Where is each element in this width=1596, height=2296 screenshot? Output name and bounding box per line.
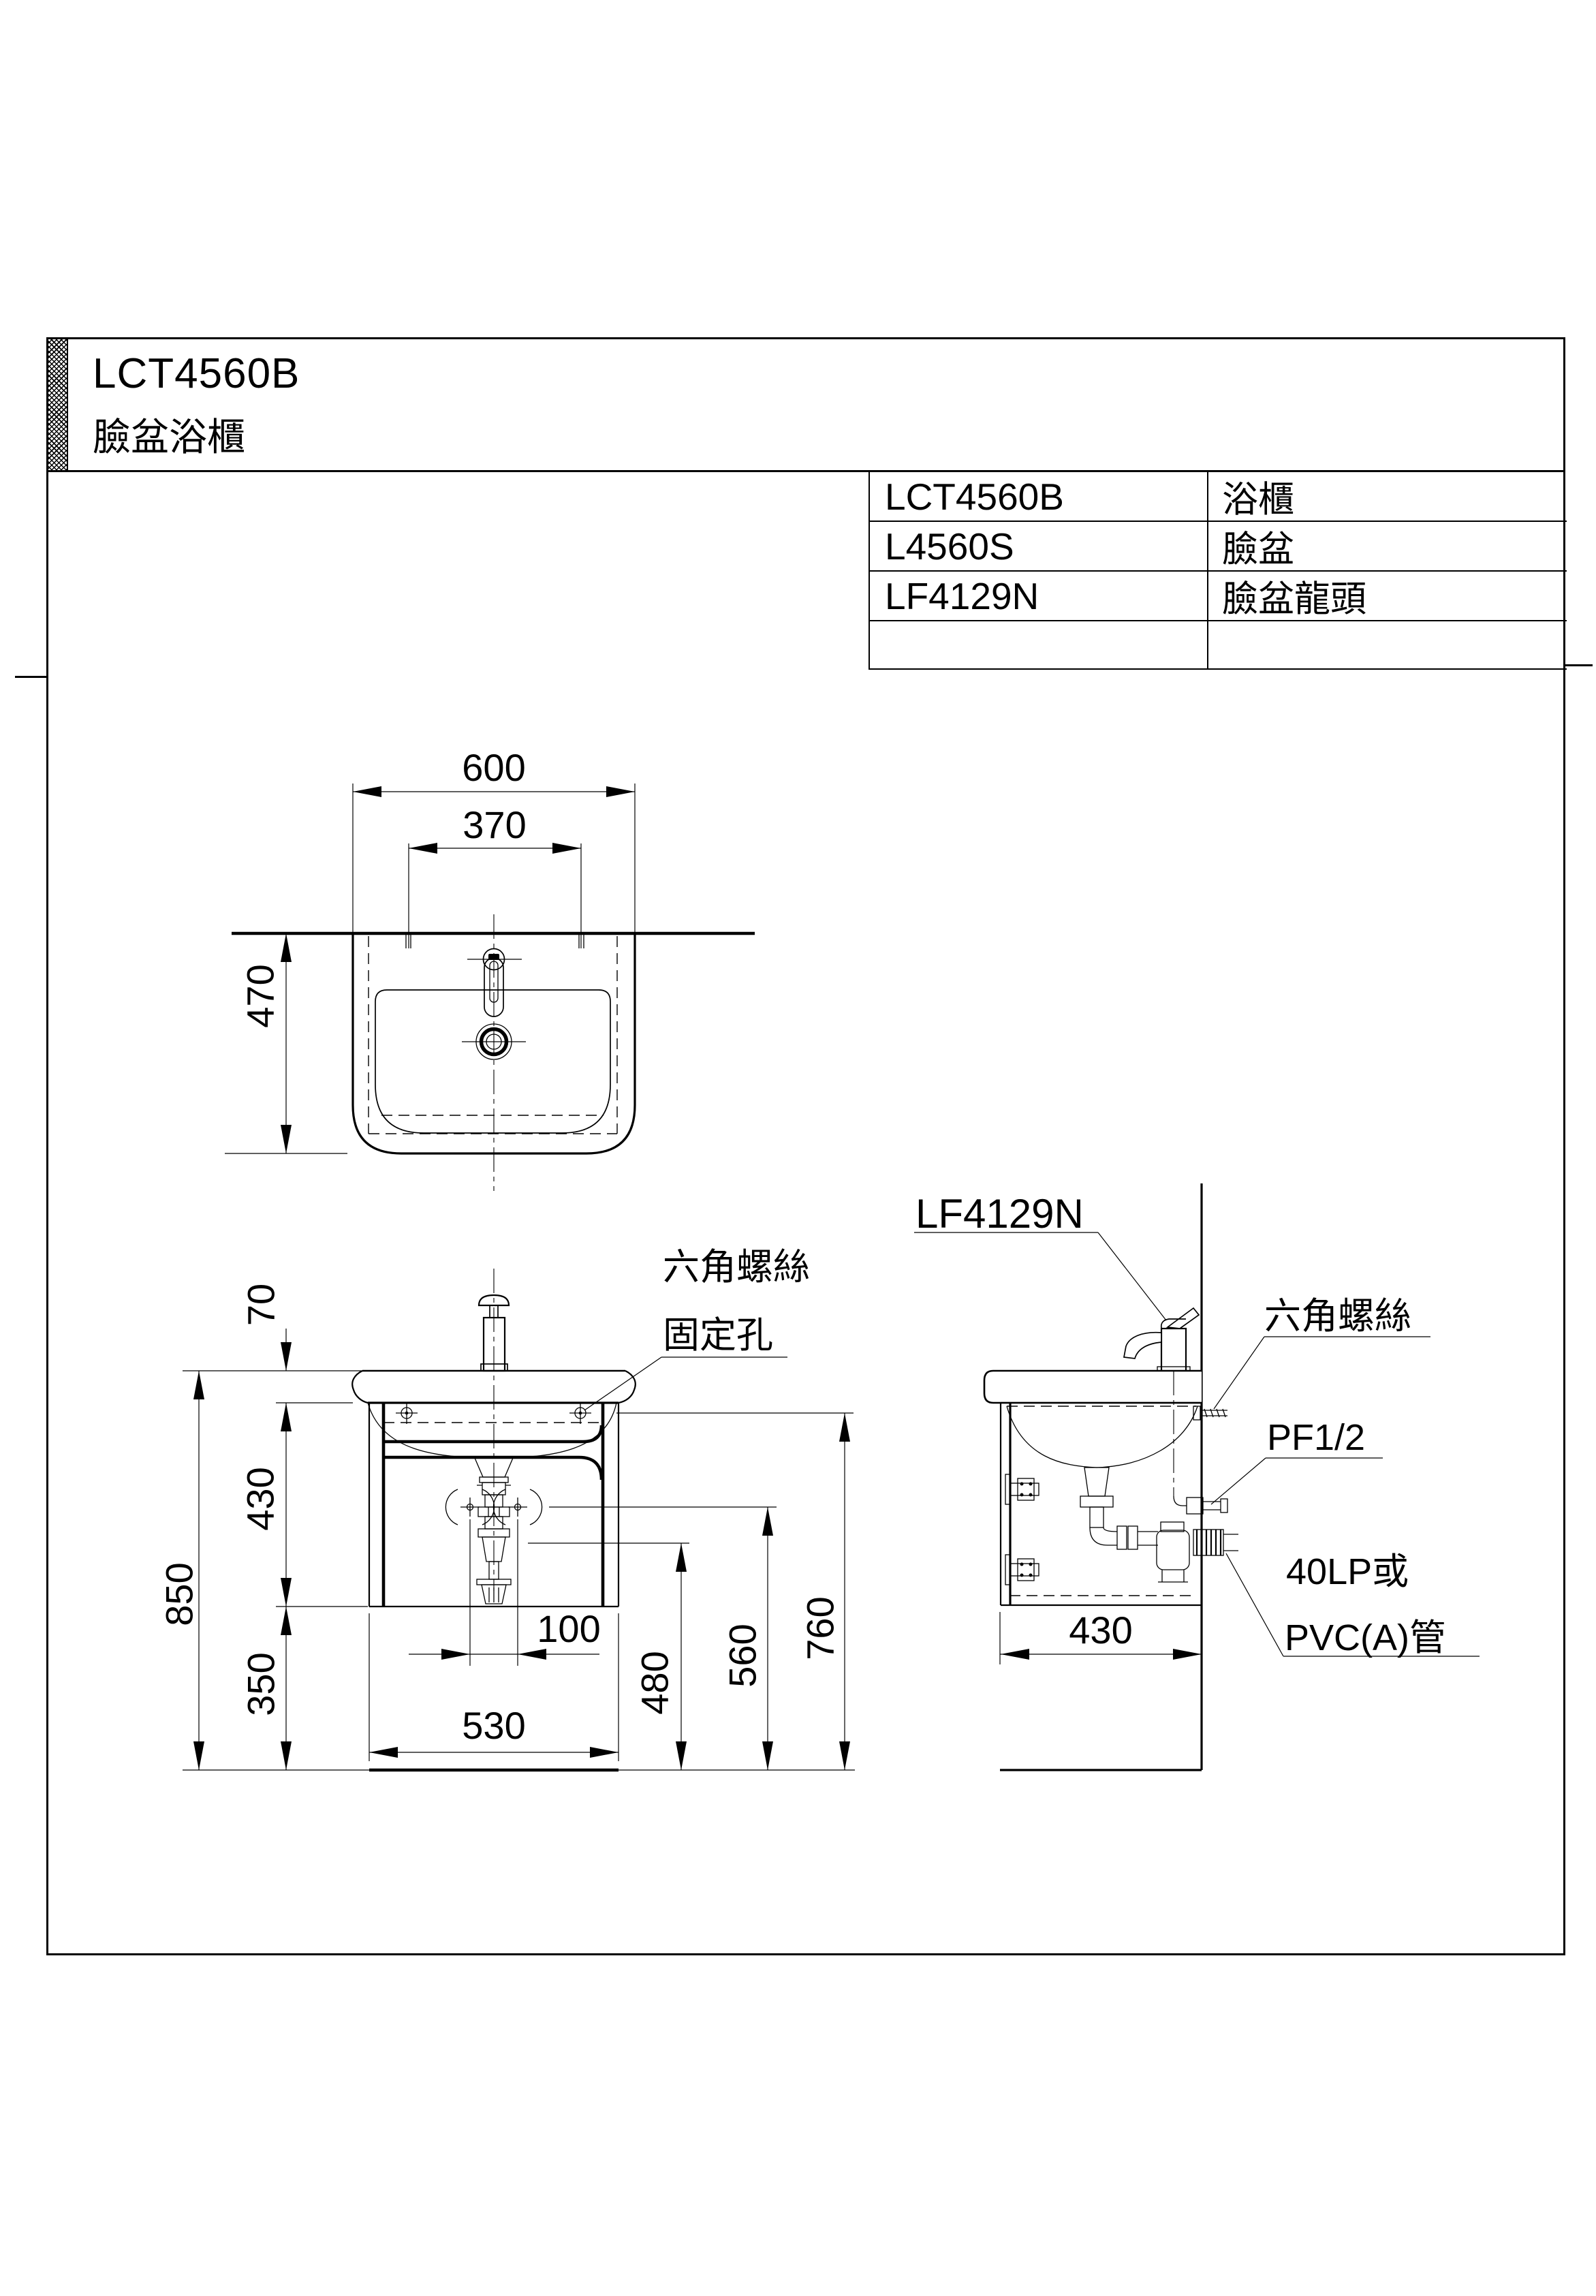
part-code: LF4129N xyxy=(885,572,1205,620)
table-row: LCT4560B 浴櫃 xyxy=(870,472,1567,522)
part-name: 臉盆 xyxy=(1222,522,1549,570)
table-column-divider xyxy=(1207,522,1208,570)
table-column-divider xyxy=(1207,621,1208,668)
part-code xyxy=(885,621,1205,668)
table-row xyxy=(870,621,1567,670)
table-row: L4560S 臉盆 xyxy=(870,522,1567,572)
part-name: 浴櫃 xyxy=(1222,472,1549,521)
part-name xyxy=(1222,621,1549,668)
part-code: L4560S xyxy=(885,522,1205,570)
part-code: LCT4560B xyxy=(885,472,1205,521)
title-hatch-bar xyxy=(46,337,68,470)
table-column-divider xyxy=(1207,572,1208,620)
table-row: LF4129N 臉盆龍頭 xyxy=(870,572,1567,621)
table-column-divider xyxy=(1207,472,1208,521)
left-edge-tick xyxy=(15,676,46,678)
sheet-model-number: LCT4560B xyxy=(93,350,300,398)
sheet-product-name: 臉盆浴櫃 xyxy=(93,407,245,462)
drawing-sheet: 600 370 470 xyxy=(0,0,1596,2296)
parts-table: LCT4560B 浴櫃 L4560S 臉盆 LF4129N 臉盆龍頭 xyxy=(869,472,1567,670)
title-block: LCT4560B 臉盆浴櫃 xyxy=(46,337,1565,472)
right-edge-tick xyxy=(1565,664,1593,666)
part-name: 臉盆龍頭 xyxy=(1222,572,1549,620)
